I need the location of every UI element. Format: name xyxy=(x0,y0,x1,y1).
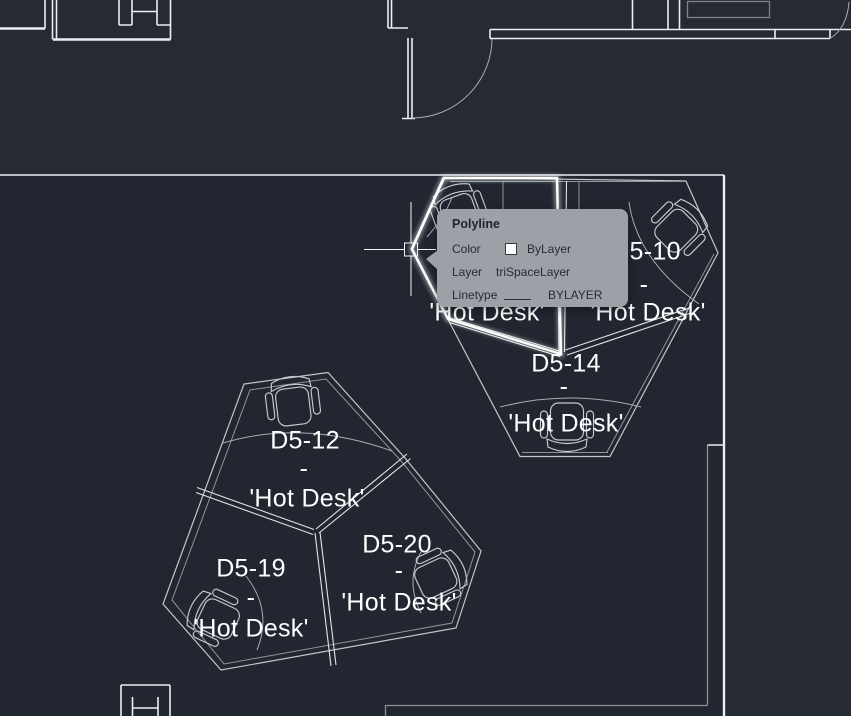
desk-label-separator[interactable]: - xyxy=(395,559,404,584)
desk-label-id[interactable]: D5-12 xyxy=(270,429,340,454)
desk-label-type[interactable]: 'Hot Desk' xyxy=(193,617,308,642)
desk-label-separator[interactable]: - xyxy=(300,457,309,482)
desk-label-type[interactable]: 'Hot Desk' xyxy=(341,591,456,616)
color-label: Color xyxy=(452,242,481,256)
desk-label-id[interactable]: D5-20 xyxy=(362,533,432,558)
door-swing-arc xyxy=(412,38,492,118)
desk-label-id[interactable]: D5-19 xyxy=(216,557,286,582)
door-swing-arc-right xyxy=(830,2,849,39)
linetype-sample-icon xyxy=(504,299,531,300)
desk-label-type[interactable]: 'Hot Desk' xyxy=(508,412,623,437)
desk-label-separator[interactable]: - xyxy=(560,375,569,400)
color-swatch-icon xyxy=(505,243,517,255)
layer-label: Layer xyxy=(452,265,482,279)
entity-tooltip: Polyline Color ByLayer Layer triSpaceLay… xyxy=(437,209,628,307)
layer-value: triSpaceLayer xyxy=(496,265,570,279)
desk-label-separator[interactable]: - xyxy=(640,273,649,298)
desk-label-type[interactable]: 'Hot Desk' xyxy=(249,487,364,512)
linetype-label: Linetype xyxy=(452,288,497,302)
color-value: ByLayer xyxy=(527,242,571,256)
desk-label-separator[interactable]: - xyxy=(247,586,256,611)
tooltip-title: Polyline xyxy=(452,217,500,231)
linetype-value: BYLAYER xyxy=(548,288,602,302)
tooltip-pointer xyxy=(426,250,438,270)
floorplan-viewport[interactable]: 'Hot Desk' D5-10 - 'Hot Desk' D5-14 - 'H… xyxy=(0,0,851,716)
